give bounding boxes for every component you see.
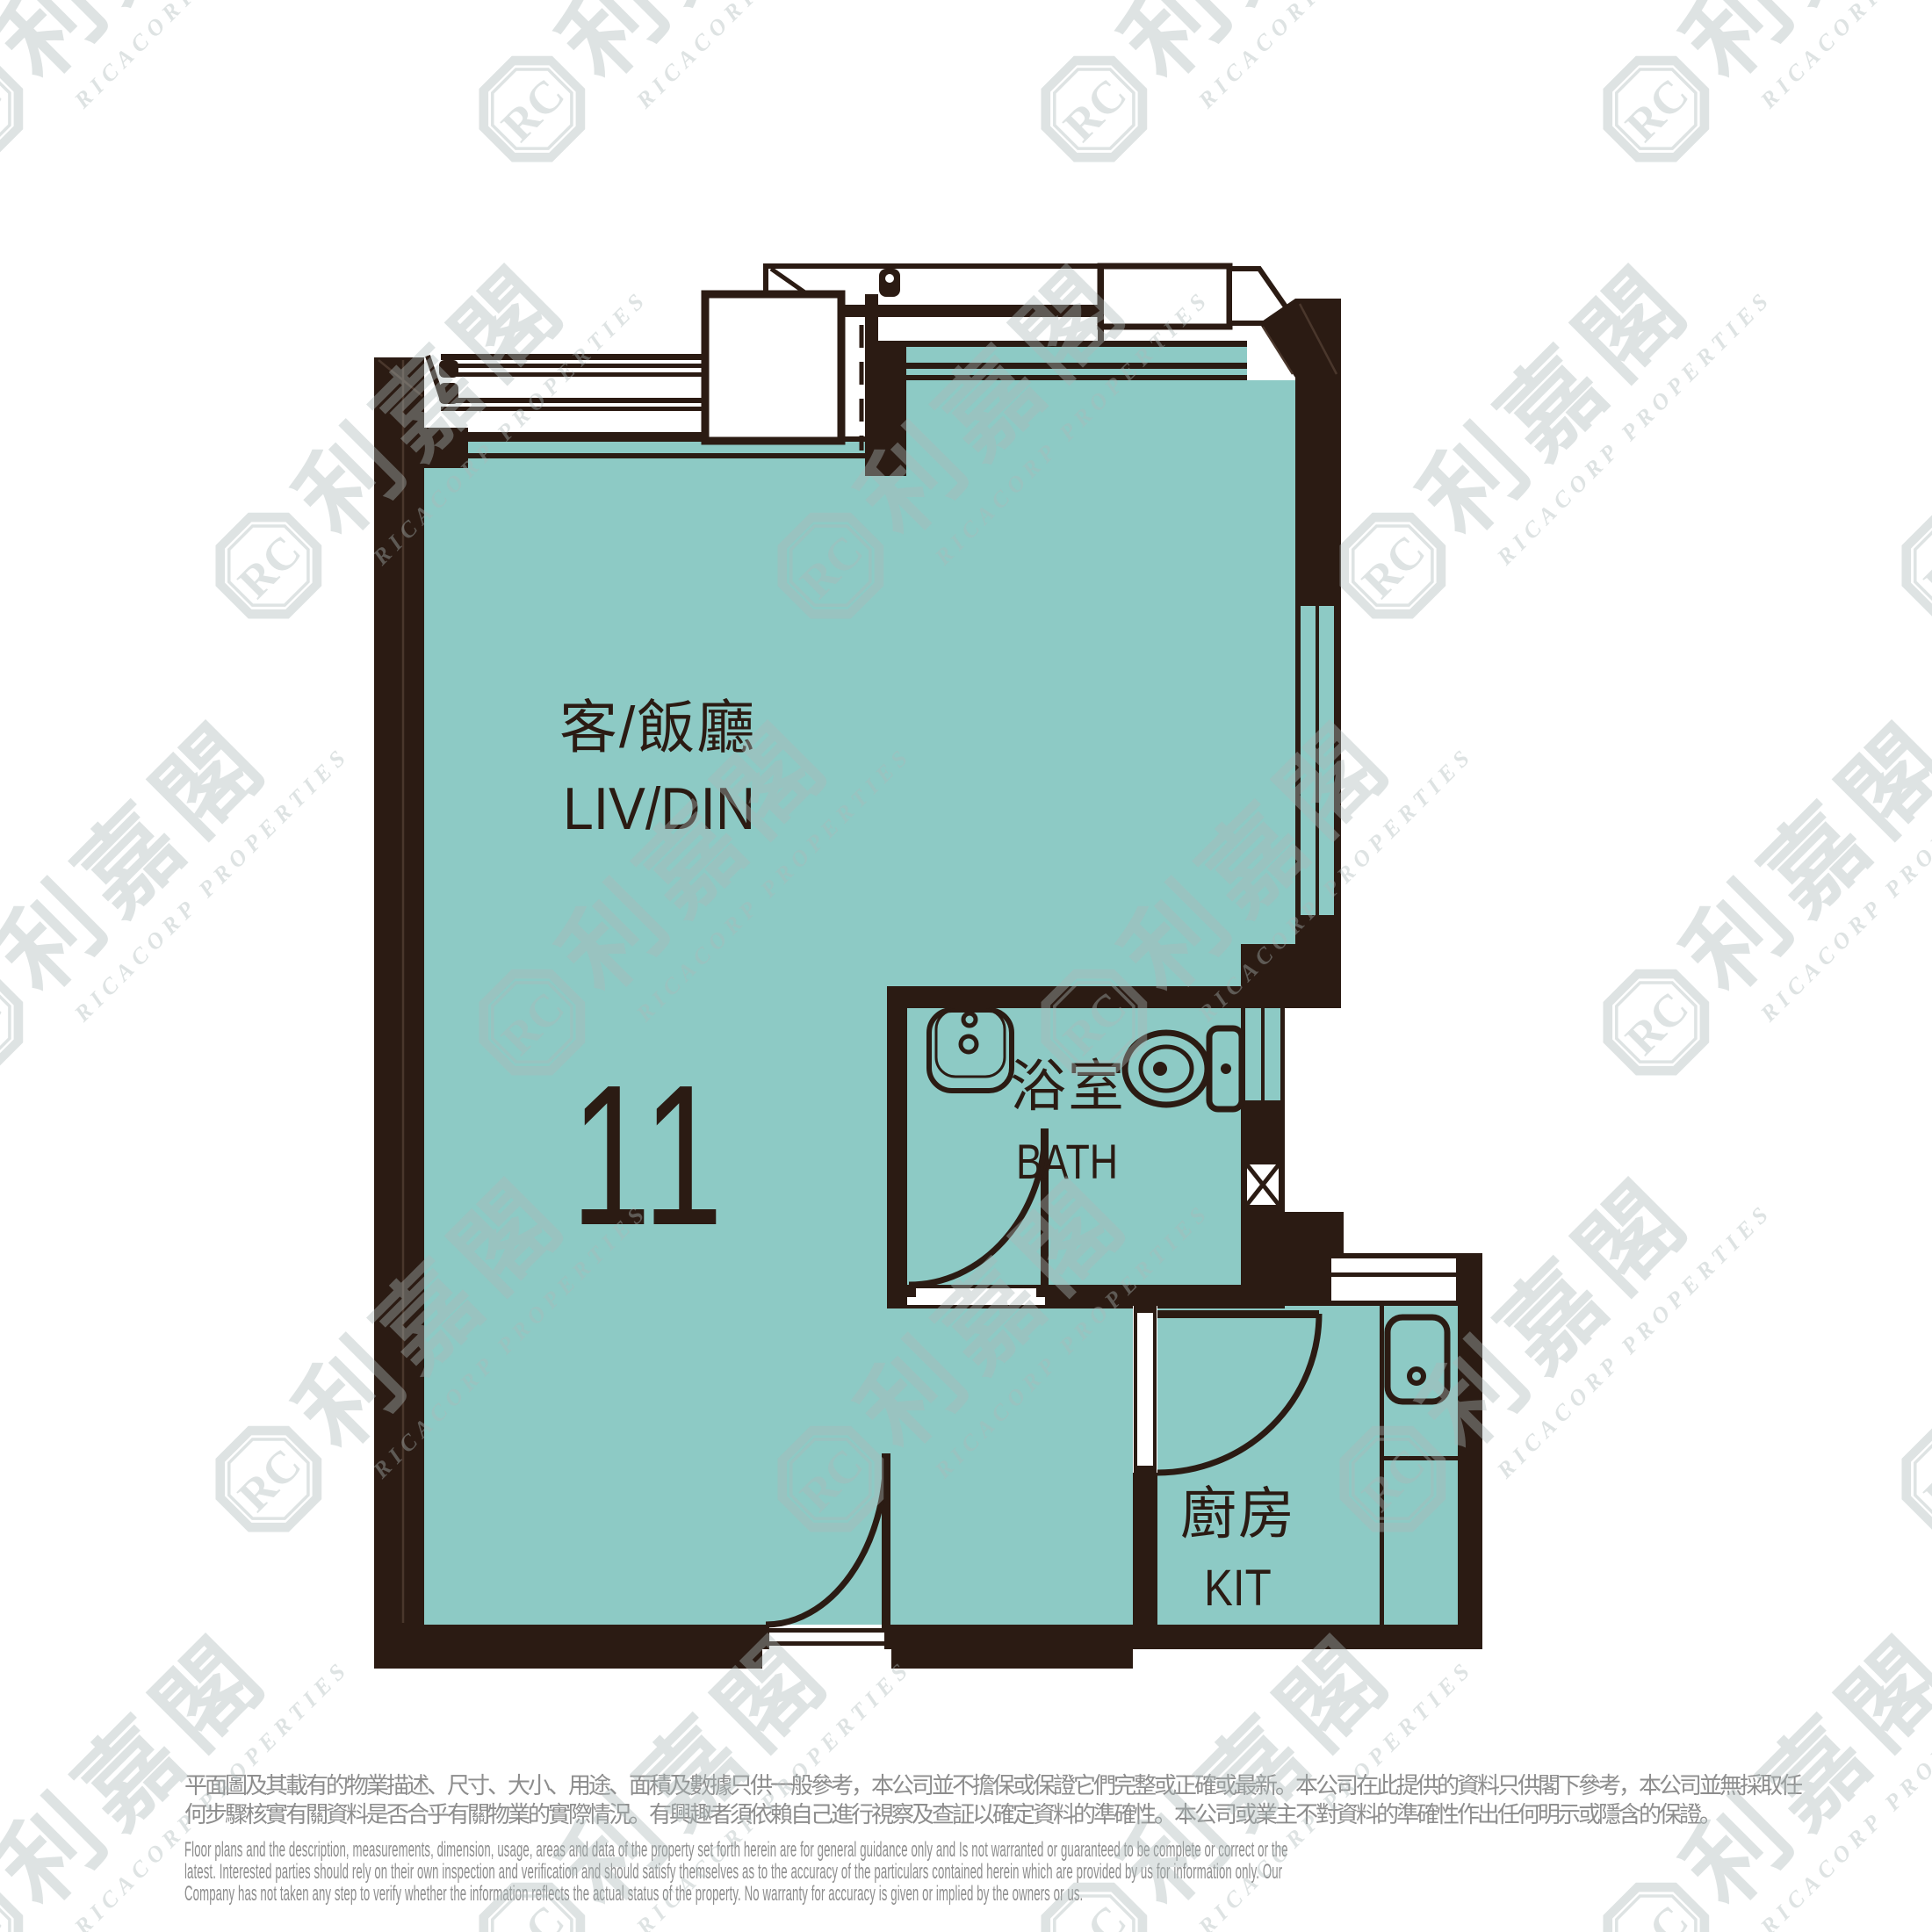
label-unit-number: 11 xyxy=(571,1056,725,1256)
pipe-duct-icon xyxy=(1244,1162,1281,1207)
right-wall-window xyxy=(1301,606,1316,915)
kitchen-window-band xyxy=(1331,1253,1456,1306)
label-kit-zh: 廚房 xyxy=(1180,1486,1296,1542)
floor-plan-image: 客/飯廳 LIV/DIN 11 浴室 BATH 廚房 KIT 平面圖及其載有的物… xyxy=(0,0,1932,1932)
label-bath-en: BATH xyxy=(1016,1137,1118,1186)
disclaimer-en-line3: Company has not taken any step to verify… xyxy=(184,1884,1083,1905)
disclaimer-zh-line1: 平面圖及其載有的物業描述、尺寸、大小、用途、面積及數據只供一般參考，本公司並不擔… xyxy=(184,1774,1800,1797)
floor-plan-drawing xyxy=(0,0,1932,1932)
label-livdin-zh: 客/飯廳 xyxy=(559,698,756,756)
disclaimer-en-line1: Floor plans and the description, measure… xyxy=(184,1840,1288,1861)
disclaimer-zh-line2: 何步驟核實有關資料是否合乎有關物業的實際情況。有興趣者須依賴自己進行視察及查証以… xyxy=(184,1803,1719,1826)
bathroom-window xyxy=(1245,1008,1261,1100)
label-bath-zh: 浴室 xyxy=(1010,1058,1126,1114)
disclaimer-en-line2: latest. Interested parties should rely o… xyxy=(184,1862,1282,1883)
label-kit-en: KIT xyxy=(1204,1563,1272,1614)
label-livdin-en: LIV/DIN xyxy=(563,779,755,839)
